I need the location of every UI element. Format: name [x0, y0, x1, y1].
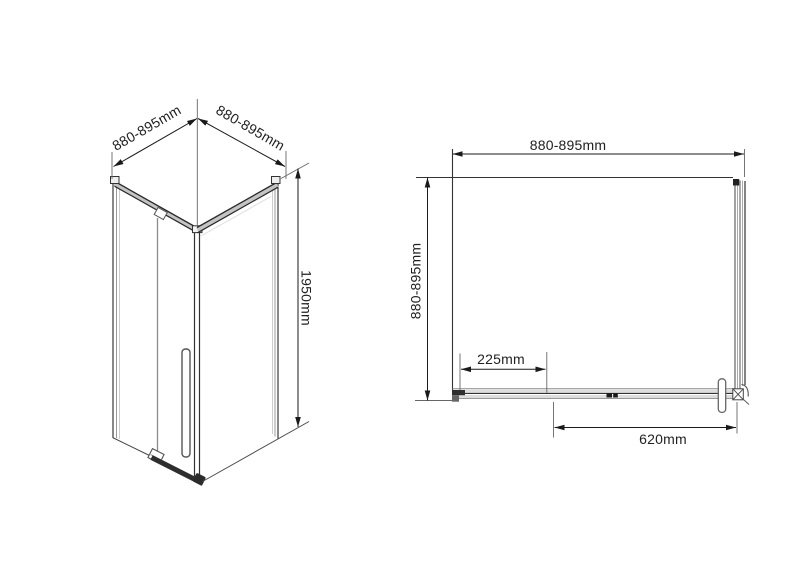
shower-enclosure-drawing: 880-895mm 880-895mm 1950mm: [0, 0, 800, 566]
plan-dim-fixed-panel-label: 225mm: [477, 351, 525, 367]
wall-bracket-plan-top: [733, 179, 739, 186]
wall-bracket-top-right: [272, 177, 281, 184]
plan-view: 880-895mm 880-895mm 225mm 620mm: [408, 137, 750, 447]
technical-drawing-canvas: 880-895mm 880-895mm 1950mm: [0, 0, 800, 566]
plan-dim-width-label: 880-895mm: [530, 137, 607, 153]
plan-door-track: [452, 389, 734, 402]
plan-dim-depth-label: 880-895mm: [408, 243, 424, 320]
isometric-view: 880-895mm 880-895mm 1950mm: [109, 99, 314, 486]
door-stopper-left: [607, 393, 613, 397]
plan-walls: [416, 149, 733, 391]
iso-dim-width-right-label: 880-895mm: [213, 102, 287, 154]
iso-dim-height-label: 1950mm: [299, 270, 315, 326]
iso-corner-post: [192, 226, 206, 486]
plan-door-handle: [718, 379, 725, 413]
iso-door-handle: [182, 349, 190, 457]
iso-dim-width-left-label: 880-895mm: [109, 102, 183, 154]
door-stopper-right: [613, 393, 618, 397]
plan-side-panel: [733, 179, 745, 389]
iso-dimensions: 880-895mm 880-895mm 1950mm: [109, 99, 314, 427]
plan-dim-door-label: 620mm: [639, 431, 687, 447]
iso-right-panel: [197, 177, 309, 482]
iso-left-panel: [111, 177, 204, 484]
track-end-cap: [452, 390, 465, 395]
